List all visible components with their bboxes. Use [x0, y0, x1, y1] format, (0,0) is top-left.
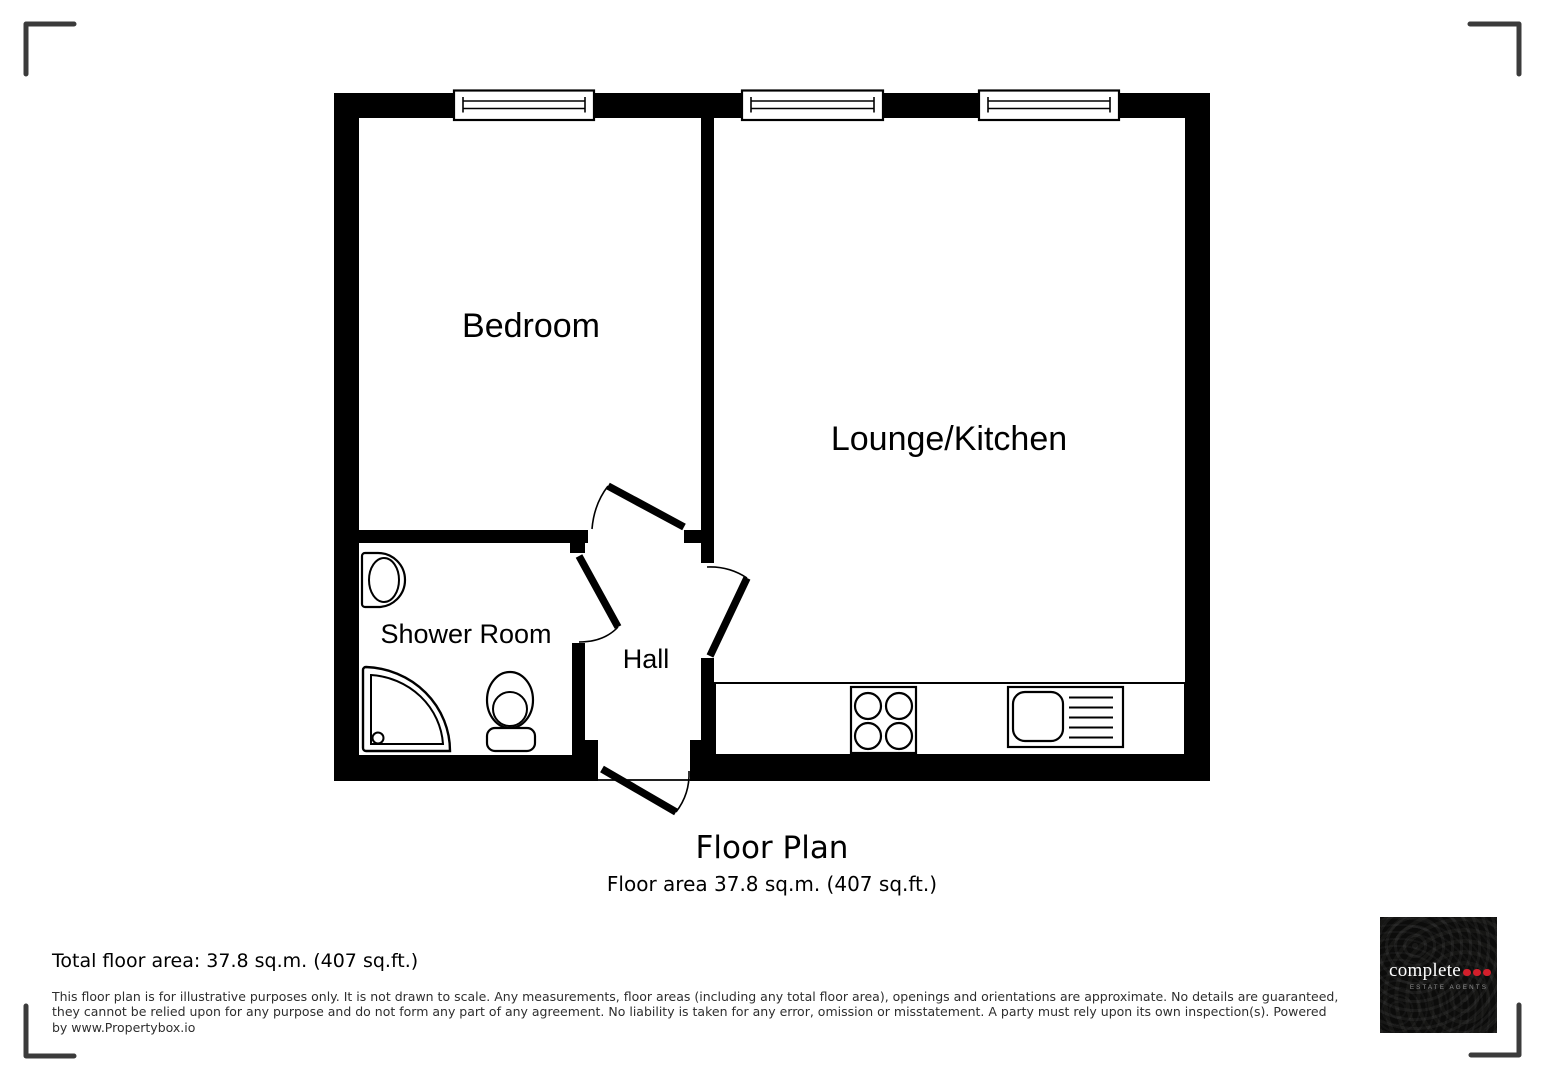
- logo-dot-icon: [1483, 969, 1491, 977]
- disclaimer-text: This floor plan is for illustrative purp…: [52, 989, 1338, 1035]
- corner-mark-top-left: [26, 24, 74, 74]
- wall-bottom-left: [334, 755, 598, 781]
- corner-mark-top-right: [1470, 24, 1519, 74]
- toilet-icon: [487, 672, 535, 751]
- logo-dots: [1463, 969, 1491, 977]
- sink-drainer-icon: [1008, 687, 1123, 747]
- total-floor-area: Total floor area: 37.8 sq.m. (407 sq.ft.…: [52, 950, 418, 972]
- wall-right: [1185, 93, 1210, 781]
- logo-dot-icon: [1463, 969, 1471, 977]
- entrance-door-icon: [602, 769, 689, 812]
- room-label-hall: Hall: [623, 644, 670, 674]
- wall-shower-hall-lower: [572, 643, 585, 755]
- wall-bedroom-door-stub: [684, 530, 701, 543]
- room-label-bedroom: Bedroom: [462, 307, 600, 345]
- disclaimer-line: they cannot be relied upon for any purpo…: [52, 1004, 1338, 1019]
- bedroom-door-icon: [592, 486, 684, 529]
- bathroom-fittings: [362, 553, 535, 751]
- logo-tagline: ESTATE AGENTS: [1389, 984, 1488, 991]
- agency-logo: complete ESTATE AGENTS: [1380, 917, 1497, 1033]
- room-label-lounge-kitchen: Lounge/Kitchen: [831, 420, 1067, 458]
- shower-room-door-icon: [579, 556, 618, 642]
- floor-plan-drawing: Bedroom Lounge/Kitchen Shower Room Hall: [0, 0, 1544, 1080]
- lounge-door-icon: [707, 567, 747, 656]
- floorplan-page: Bedroom Lounge/Kitchen Shower Room Hall …: [0, 0, 1544, 1080]
- wash-basin-icon: [362, 553, 405, 607]
- plan-title: Floor Plan: [696, 830, 849, 866]
- wall-left: [334, 93, 359, 781]
- logo-brand-row: complete: [1389, 960, 1488, 982]
- disclaimer-line: This floor plan is for illustrative purp…: [52, 989, 1338, 1004]
- disclaimer-line: by www.Propertybox.io: [52, 1020, 1338, 1035]
- kitchen-fittings: [715, 683, 1185, 755]
- wall-shower-hall-top-stub: [570, 543, 585, 553]
- wall-entrance-jamb-left: [572, 740, 598, 755]
- wall-bedroom-lounge-divider: [701, 118, 714, 563]
- corner-marks: [26, 24, 1519, 1056]
- wall-entrance-jamb-right: [690, 740, 714, 755]
- window-icon: [454, 91, 594, 121]
- walls: [334, 93, 1210, 781]
- shower-tray-icon: [363, 667, 450, 751]
- wall-bedroom-bottom: [359, 530, 588, 543]
- logo-brand-text: complete: [1389, 960, 1461, 982]
- room-label-shower-room: Shower Room: [380, 619, 551, 649]
- windows: [454, 91, 1119, 121]
- logo-dot-icon: [1473, 969, 1481, 977]
- window-icon: [979, 91, 1119, 121]
- wall-bottom-right: [690, 755, 1210, 781]
- plan-subtitle: Floor area 37.8 sq.m. (407 sq.ft.): [607, 872, 937, 896]
- hob-icon: [851, 687, 916, 753]
- window-icon: [742, 91, 883, 121]
